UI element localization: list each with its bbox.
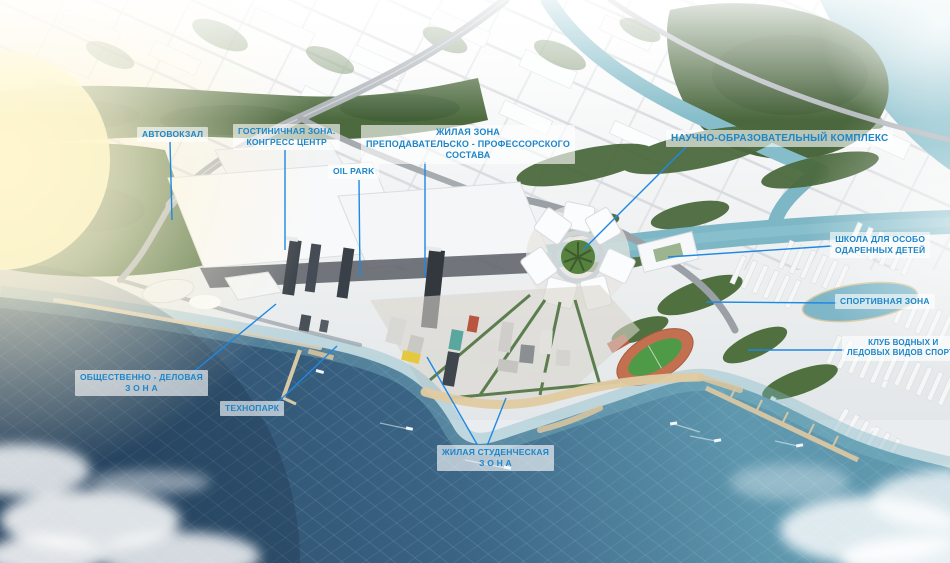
callout-text: КЛУБ ВОДНЫХ И: [847, 338, 950, 348]
callout-text: АВТОВОКЗАЛ: [142, 129, 203, 140]
callout-text: ГОСТИНИЧНАЯ ЗОНА.: [238, 126, 335, 137]
callout-text: ТЕХНОПАРК: [225, 403, 279, 414]
top-haze: [0, 0, 950, 120]
callout-text: OIL PARK: [333, 166, 374, 177]
callout-hotel-congress: ГОСТИНИЧНАЯ ЗОНА. КОНГРЕСС ЦЕНТР: [233, 124, 340, 150]
callout-text: ПРЕПОДАВАТЕЛЬСКО - ПРОФЕССОРСКОГО: [366, 139, 570, 151]
callout-text: ЖИЛАЯ ЗОНА: [366, 127, 570, 139]
callout-text: СОСТАВА: [366, 150, 570, 162]
callout-text: КОНГРЕСС ЦЕНТР: [238, 137, 335, 148]
masterplan-aerial-view: АВТОВОКЗАЛ ГОСТИНИЧНАЯ ЗОНА. КОНГРЕСС ЦЕ…: [0, 0, 950, 563]
callout-science-complex: НАУЧНО-ОБРАЗОВАТЕЛЬНЫЙ КОМПЛЕКС: [666, 130, 893, 147]
callout-bus-station: АВТОВОКЗАЛ: [137, 127, 208, 142]
callout-text: З О Н А: [442, 458, 549, 469]
callout-gifted-school: ШКОЛА ДЛЯ ОСОБО ОДАРЕННЫХ ДЕТЕЙ: [830, 232, 930, 258]
callout-text: З О Н А: [80, 383, 203, 394]
callout-text: ОБЩЕСТВЕННО - ДЕЛОВАЯ: [80, 372, 203, 383]
callout-text: ЖИЛАЯ СТУДЕНЧЕСКАЯ: [442, 447, 549, 458]
callout-sport-zone: СПОРТИВНАЯ ЗОНА: [835, 294, 935, 309]
callout-text: ОДАРЕННЫХ ДЕТЕЙ: [835, 245, 925, 256]
callout-text: ЛЕДОВЫХ ВИДОВ СПОРТА: [847, 348, 950, 358]
callout-text: НАУЧНО-ОБРАЗОВАТЕЛЬНЫЙ КОМПЛЕКС: [671, 132, 888, 145]
aerial-render: [0, 0, 950, 563]
callout-text: СПОРТИВНАЯ ЗОНА: [840, 296, 930, 307]
callout-water-ice-club: КЛУБ ВОДНЫХ И ЛЕДОВЫХ ВИДОВ СПОРТА: [842, 336, 950, 361]
callout-oil-park: OIL PARK: [328, 164, 379, 179]
callout-business-zone: ОБЩЕСТВЕННО - ДЕЛОВАЯ З О Н А: [75, 370, 208, 396]
callout-faculty-housing: ЖИЛАЯ ЗОНА ПРЕПОДАВАТЕЛЬСКО - ПРОФЕССОРС…: [361, 125, 575, 164]
callout-technopark: ТЕХНОПАРК: [220, 401, 284, 416]
callout-student-housing: ЖИЛАЯ СТУДЕНЧЕСКАЯ З О Н А: [437, 445, 554, 471]
callout-text: ШКОЛА ДЛЯ ОСОБО: [835, 234, 925, 245]
